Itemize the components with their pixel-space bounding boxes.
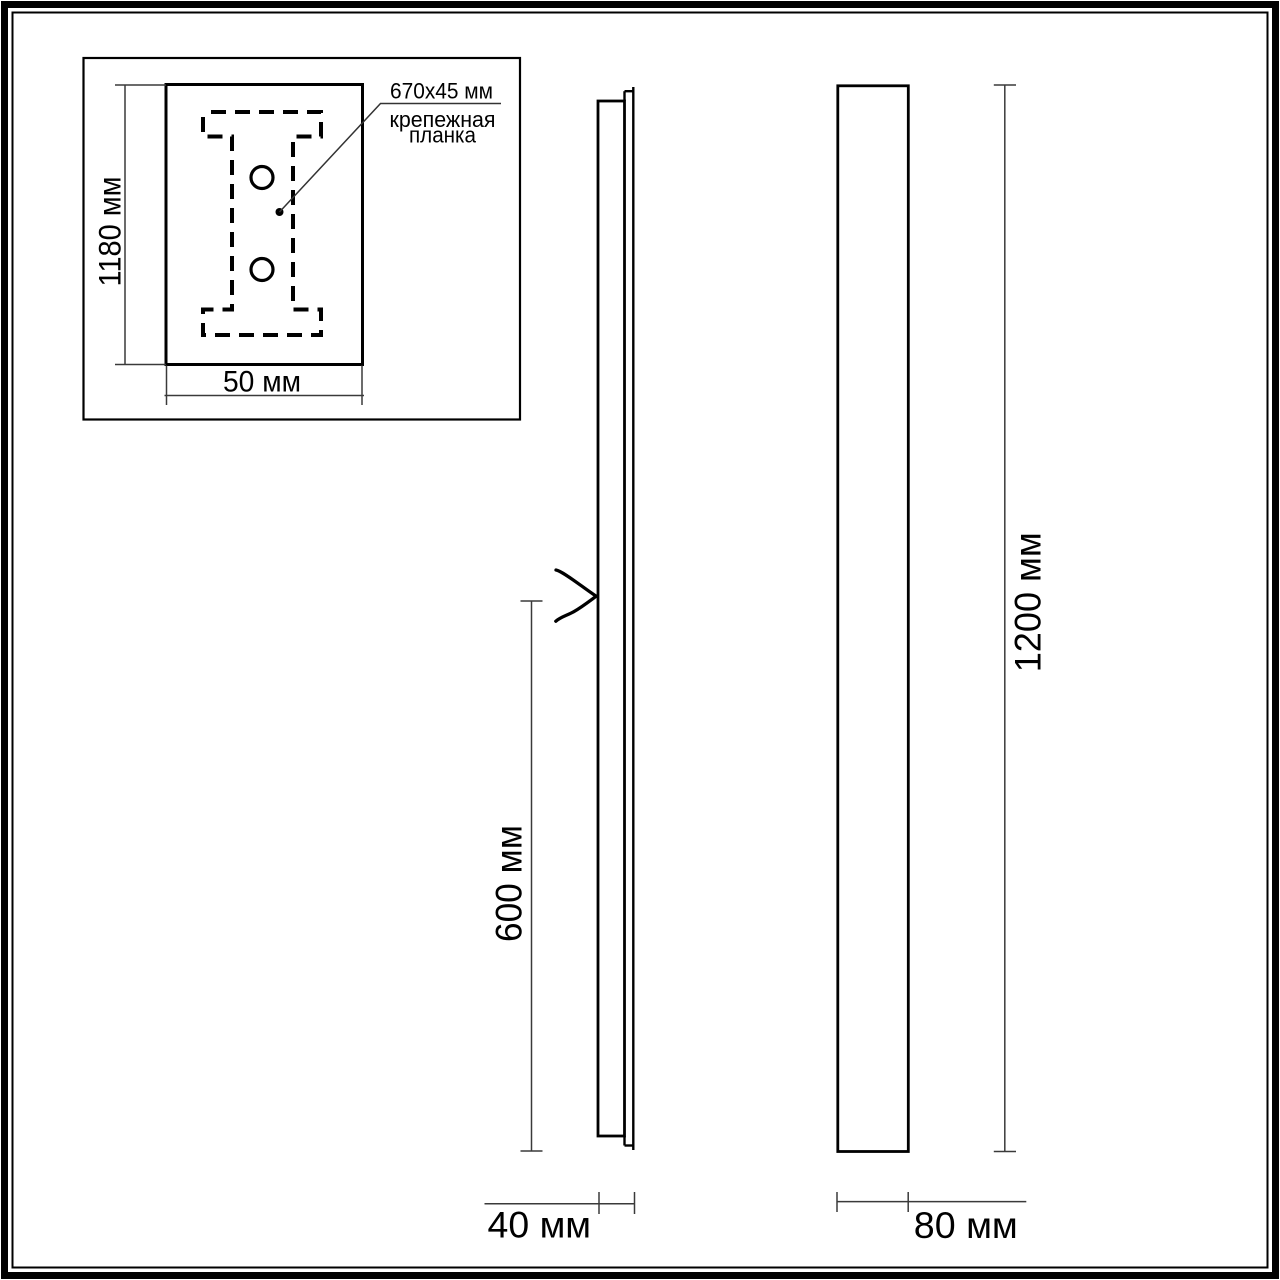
svg-text:600 мм: 600 мм [487,825,529,942]
svg-text:670x45 мм: 670x45 мм [390,79,493,104]
svg-text:1180 мм: 1180 мм [92,177,128,287]
svg-text:планка: планка [409,123,476,148]
svg-text:40 мм: 40 мм [488,1204,592,1246]
svg-text:1200 мм: 1200 мм [1007,532,1049,672]
svg-text:50 мм: 50 мм [223,366,301,399]
svg-text:80 мм: 80 мм [914,1204,1018,1246]
